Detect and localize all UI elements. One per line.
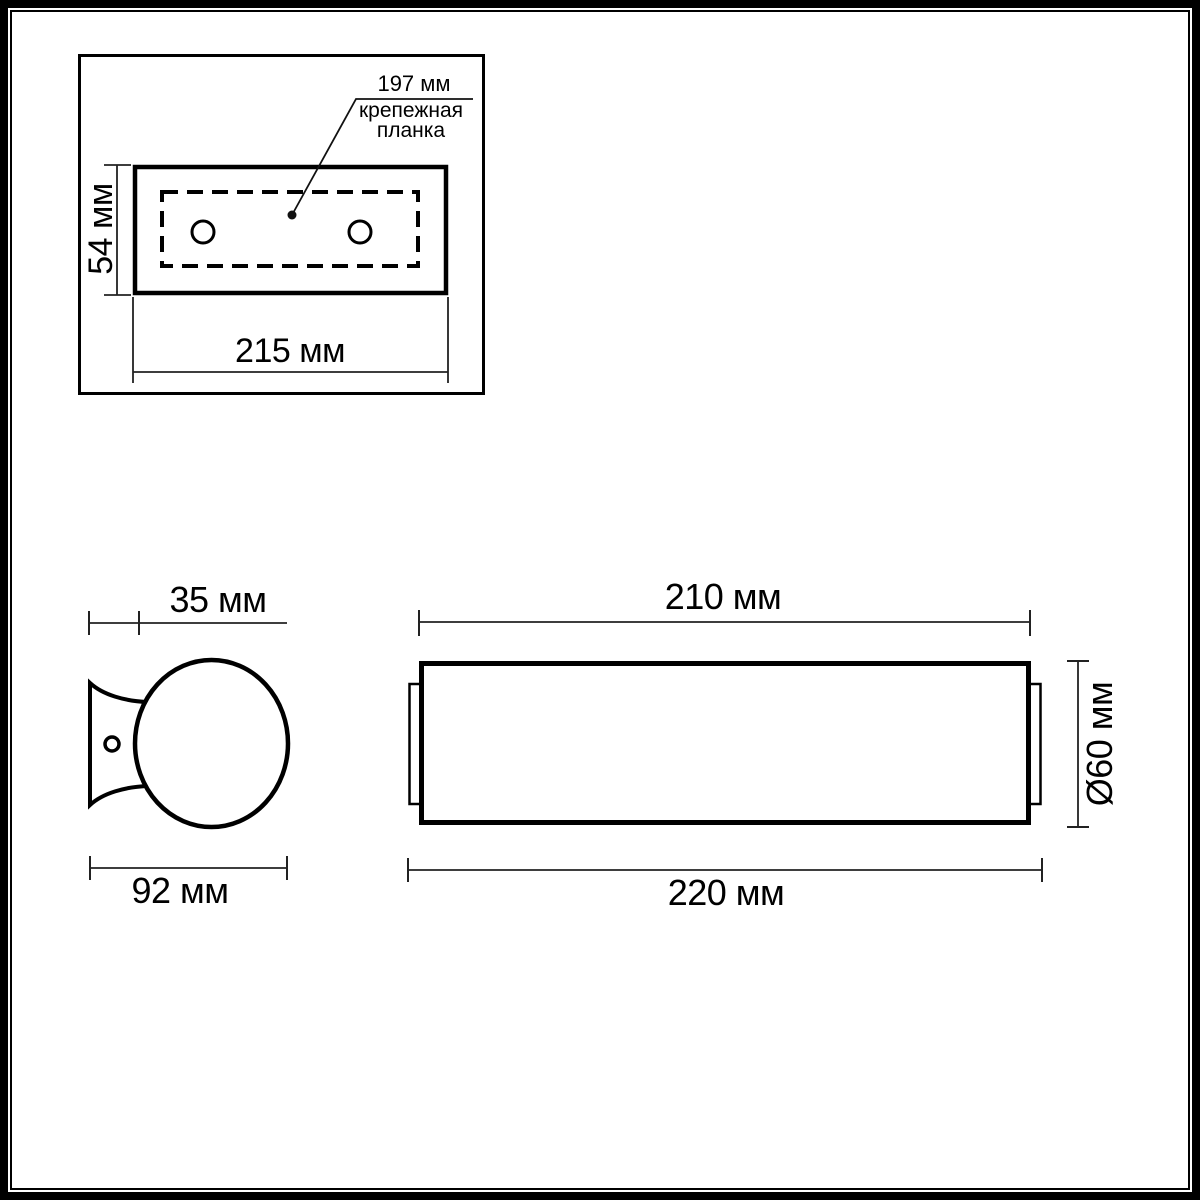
front-view-cylinder [408, 610, 1089, 882]
bracket-depth-label: 35 мм [169, 582, 266, 618]
side-view-globe [89, 611, 288, 880]
mounting-bar-name-label: крепежная планка [359, 101, 463, 141]
cylinder-body-outline [422, 664, 1029, 823]
total-length-label: 220 мм [668, 875, 785, 911]
mounting-bar-length-label: 197 мм [377, 71, 450, 97]
plate-length-label: 215 мм [235, 334, 345, 368]
plate-outline [135, 167, 446, 293]
glass-length-label: 210 мм [665, 579, 782, 615]
globe-outline [135, 660, 288, 827]
mounting-hole-right [349, 221, 371, 243]
bracket-screw-hole [105, 737, 119, 751]
mounting-hole-left [192, 221, 214, 243]
end-cap-right [1030, 684, 1041, 804]
leader-dot [288, 211, 297, 220]
mounting-bar-name-line2: планка [377, 119, 445, 142]
plate-height-label: 54 мм [84, 183, 118, 275]
diameter-label: Ø60 мм [1082, 682, 1118, 807]
end-cap-left [410, 684, 421, 804]
total-depth-label: 92 мм [131, 873, 228, 909]
